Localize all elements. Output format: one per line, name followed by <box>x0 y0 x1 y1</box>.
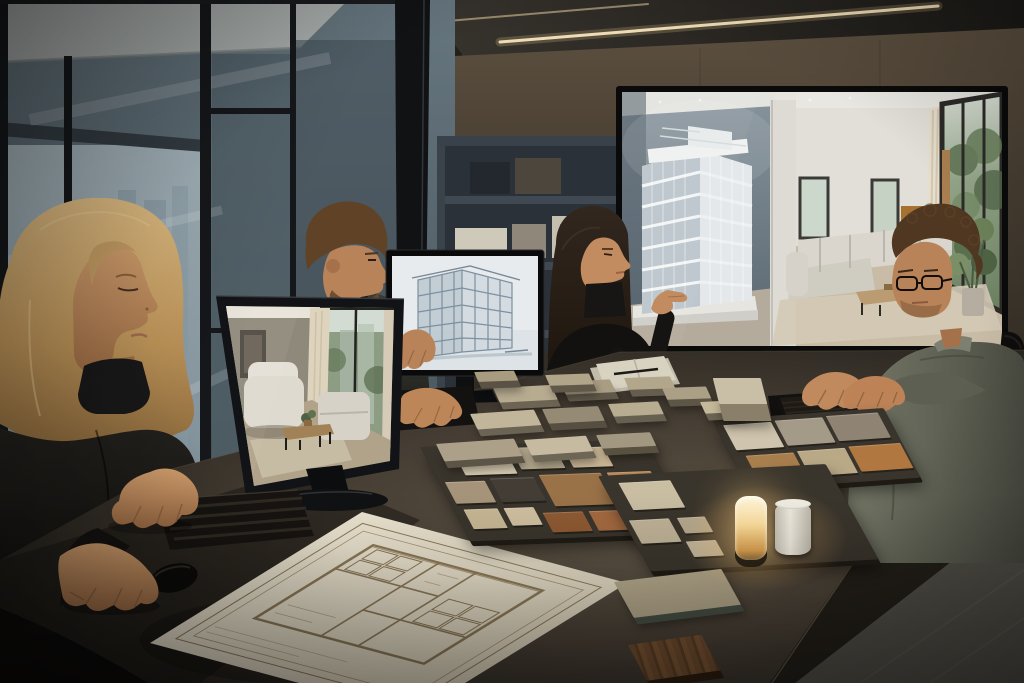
architecture-studio-scene <box>0 0 1024 683</box>
scene-canvas <box>0 0 1024 683</box>
